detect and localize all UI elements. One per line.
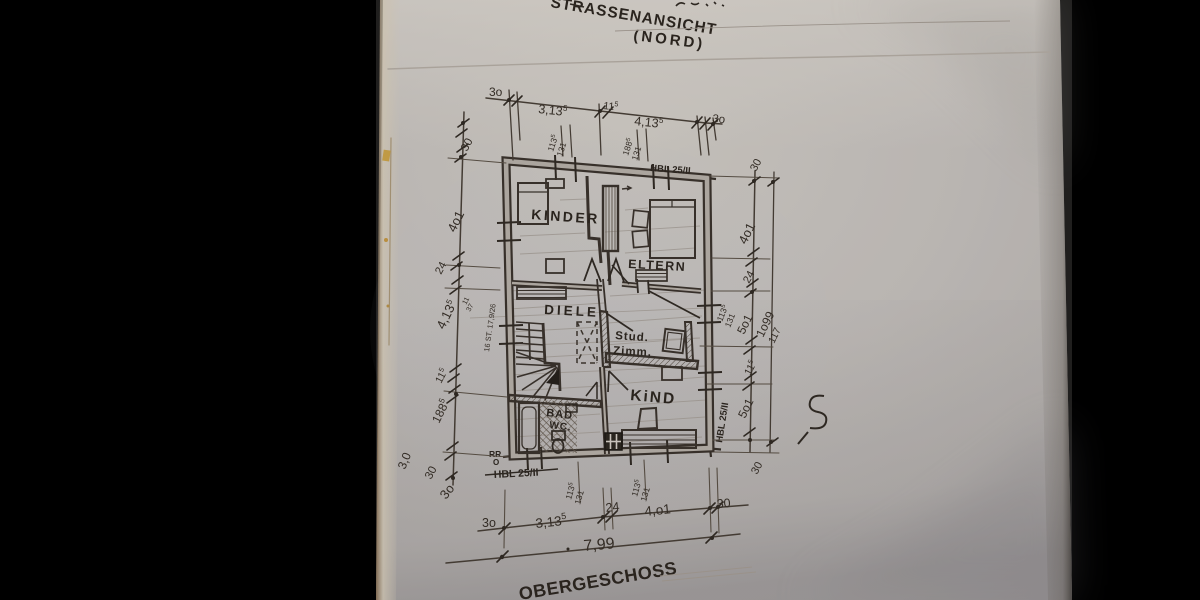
- svg-text:3o: 3o: [489, 85, 503, 99]
- svg-text:7,99: 7,99: [583, 535, 616, 555]
- svg-text:3o: 3o: [712, 113, 726, 126]
- svg-text:4,o1: 4,o1: [644, 501, 672, 519]
- svg-text:30: 30: [716, 496, 731, 511]
- svg-text:Stud.: Stud.: [615, 330, 650, 344]
- svg-text:Zimm.: Zimm.: [613, 345, 652, 359]
- svg-text:3o: 3o: [482, 516, 496, 530]
- svg-text:DIELE: DIELE: [544, 302, 599, 320]
- svg-text:O: O: [493, 458, 499, 467]
- svg-text:24: 24: [605, 500, 620, 515]
